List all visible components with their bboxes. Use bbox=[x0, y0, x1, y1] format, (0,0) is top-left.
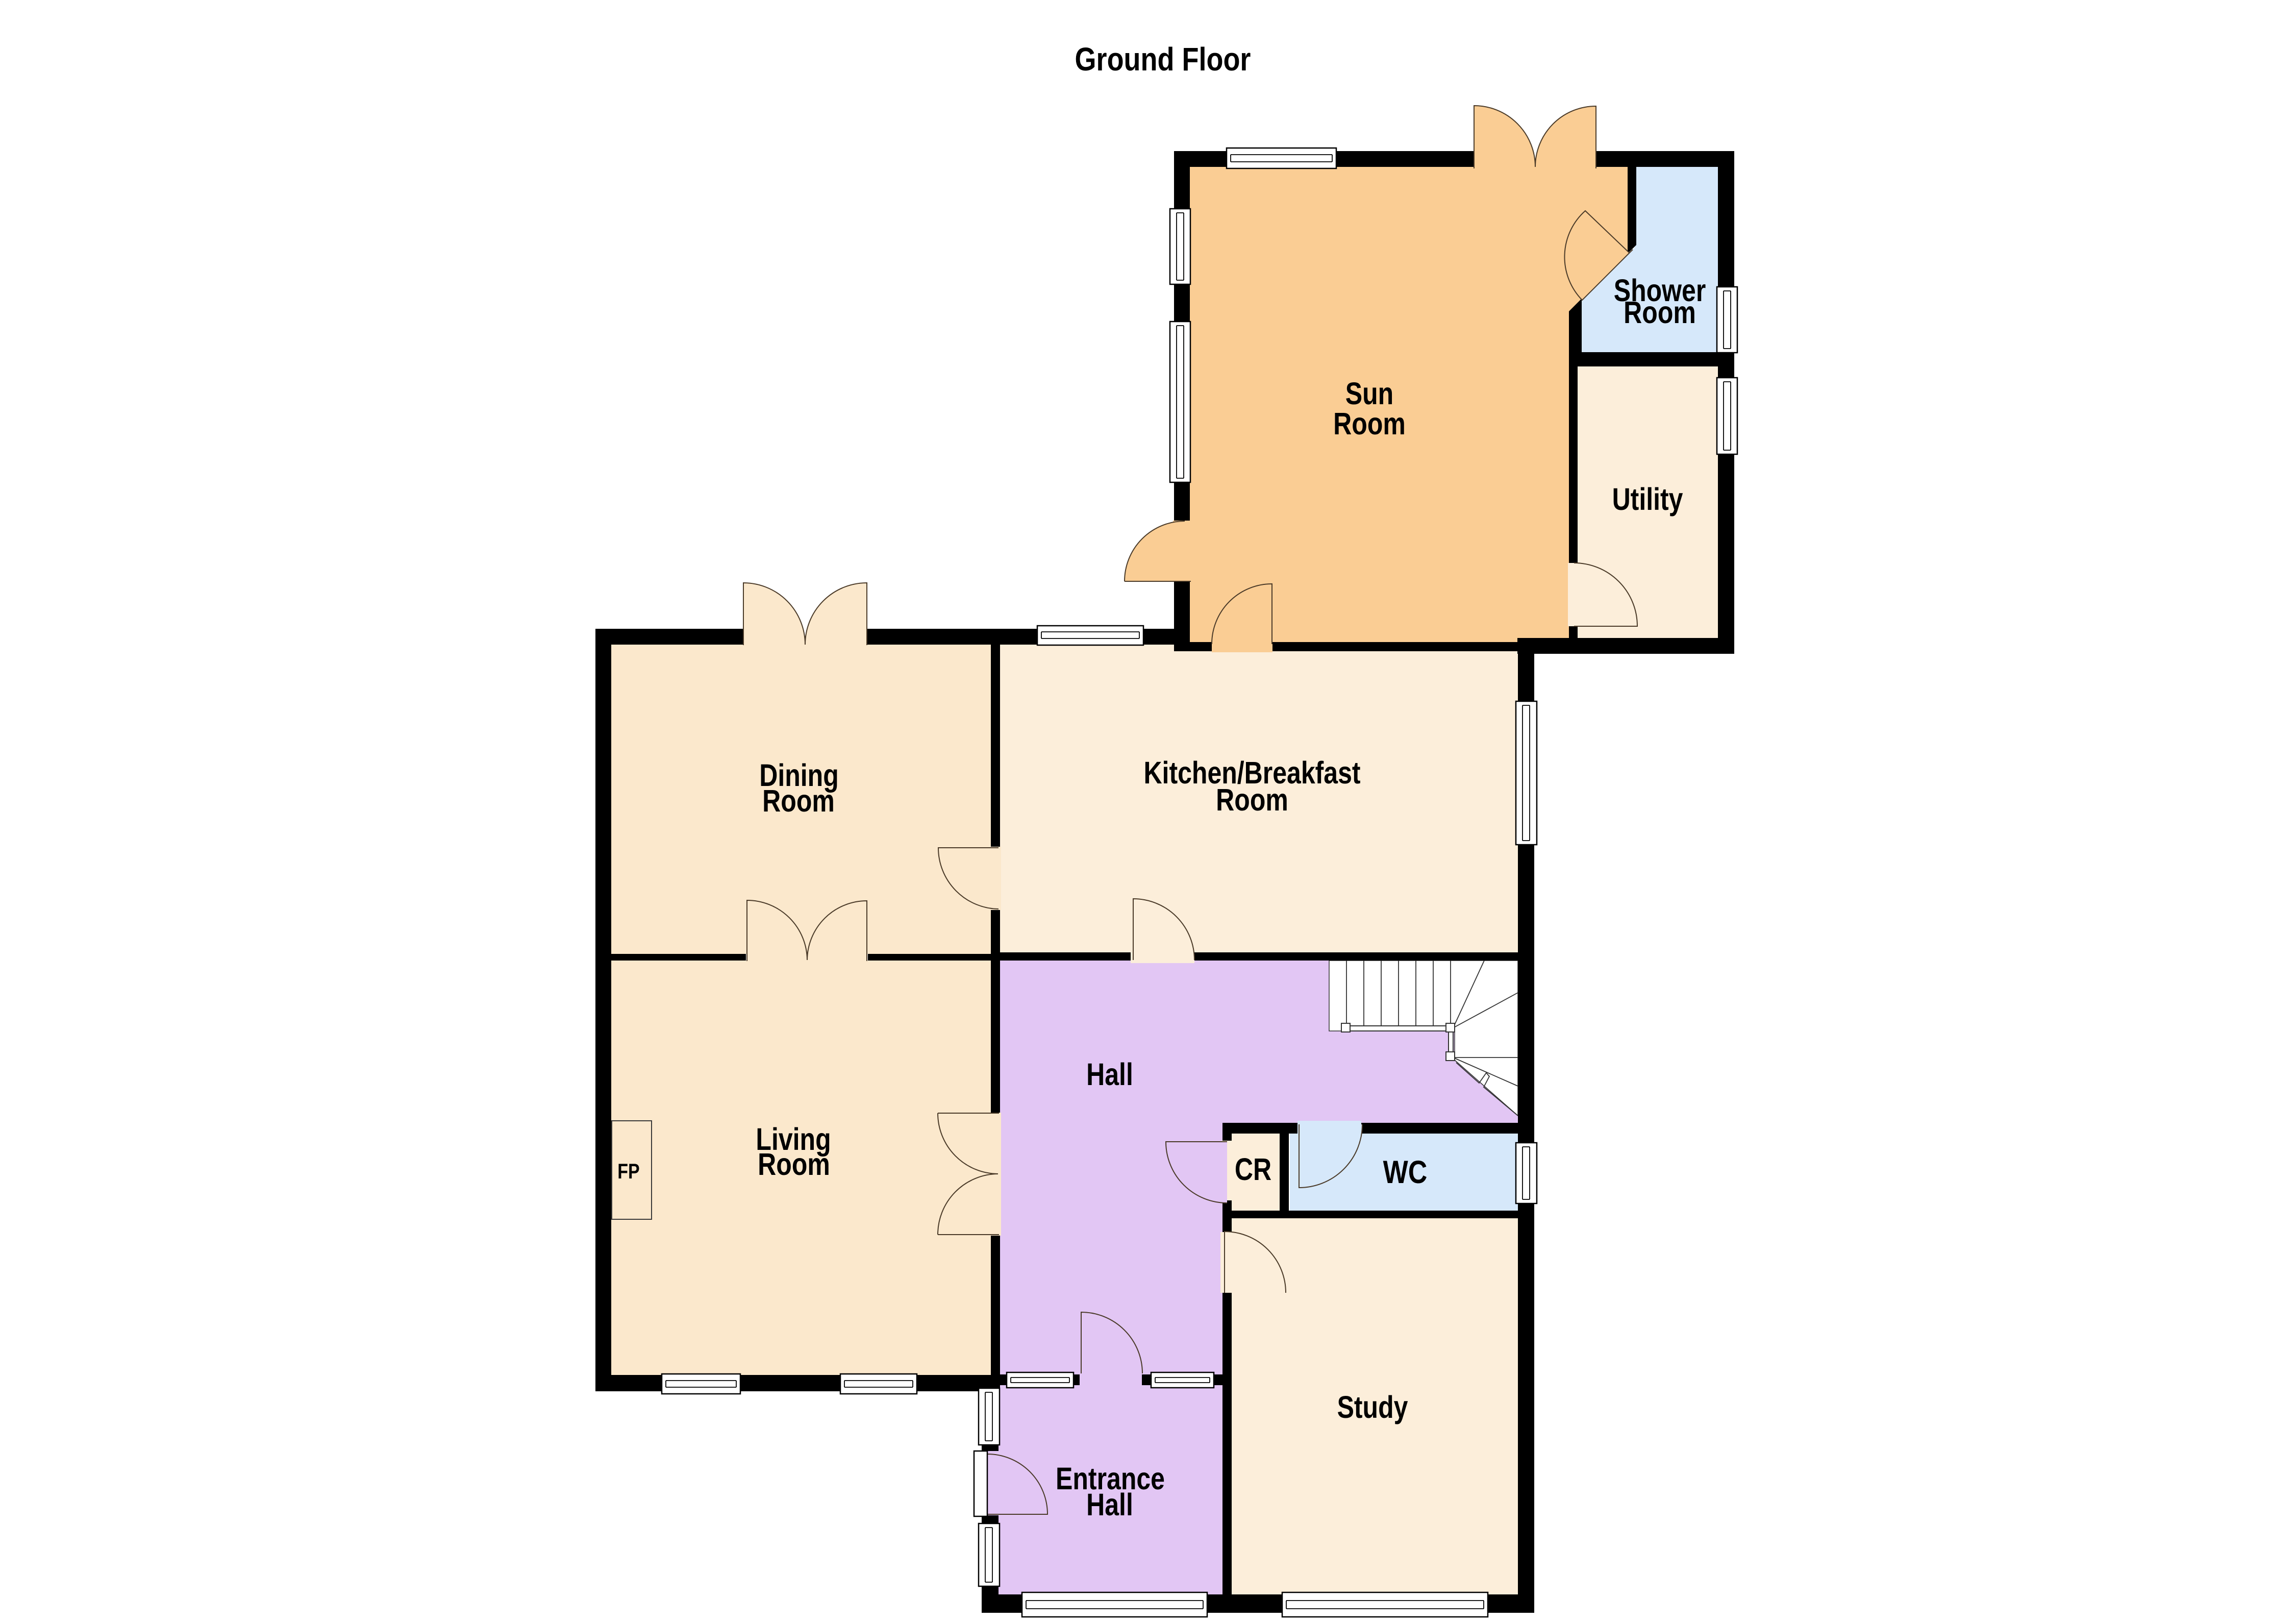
svg-text:Room: Room bbox=[758, 1147, 830, 1182]
svg-text:Room: Room bbox=[1333, 406, 1406, 441]
svg-text:Study: Study bbox=[1337, 1390, 1408, 1424]
svg-text:Hall: Hall bbox=[1086, 1487, 1133, 1522]
svg-text:Hall: Hall bbox=[1086, 1057, 1133, 1092]
svg-text:Room: Room bbox=[1624, 295, 1696, 330]
svg-text:CR: CR bbox=[1235, 1152, 1271, 1187]
svg-text:Utility: Utility bbox=[1612, 482, 1683, 517]
svg-text:WC: WC bbox=[1383, 1154, 1428, 1190]
svg-text:Room: Room bbox=[762, 783, 835, 818]
svg-text:Ground Floor: Ground Floor bbox=[1075, 41, 1251, 78]
svg-text:Sun: Sun bbox=[1345, 376, 1393, 411]
svg-text:Room: Room bbox=[1216, 782, 1288, 817]
svg-text:FP: FP bbox=[617, 1160, 639, 1184]
